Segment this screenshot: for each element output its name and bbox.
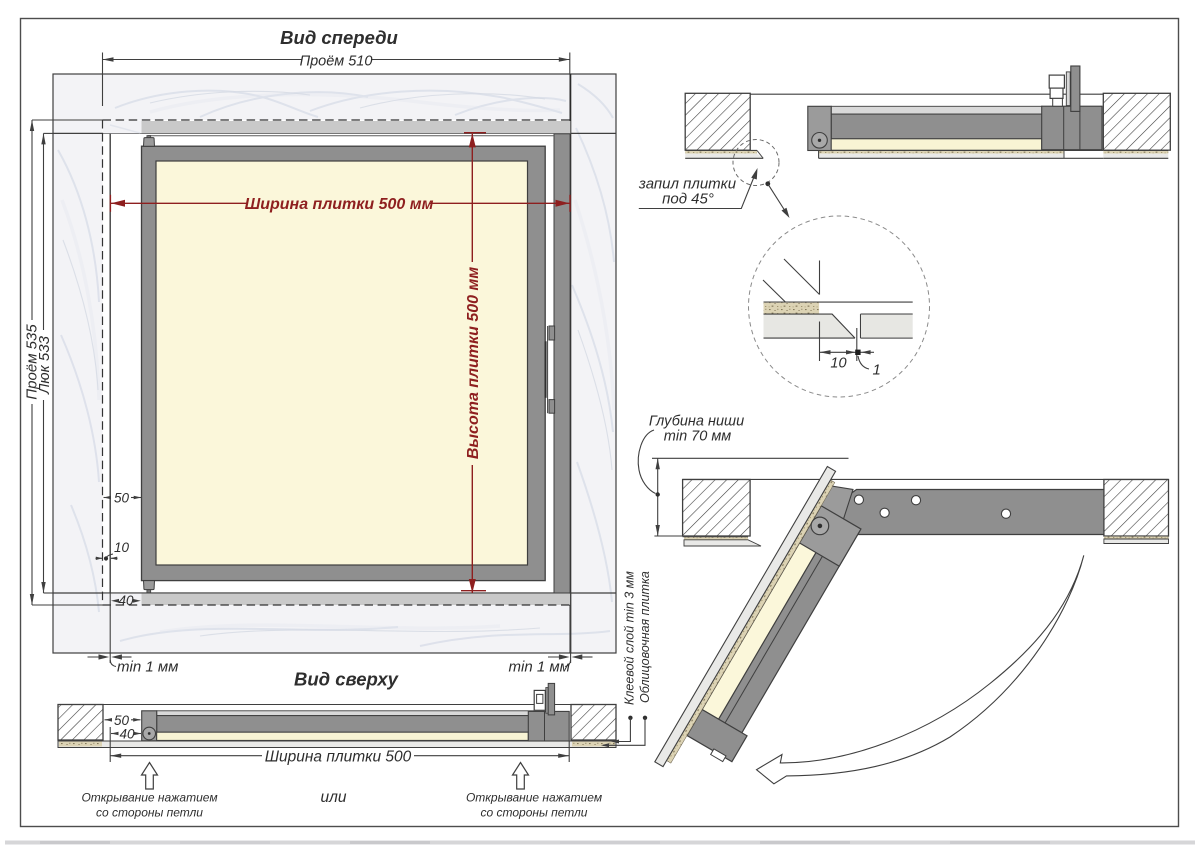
svg-text:Открывание нажатием: Открывание нажатием	[81, 791, 217, 805]
svg-text:10: 10	[830, 356, 846, 372]
svg-text:10: 10	[114, 540, 130, 555]
svg-text:min 1 мм: min 1 мм	[509, 659, 570, 676]
svg-text:50: 50	[114, 491, 130, 506]
svg-text:Глубина ниши: Глубина ниши	[649, 414, 744, 430]
svg-text:Высота плитки 500 мм: Высота плитки 500 мм	[465, 267, 482, 459]
svg-text:под 45°: под 45°	[662, 191, 714, 208]
svg-text:или: или	[321, 789, 347, 806]
svg-text:Открывание нажатием: Открывание нажатием	[466, 791, 602, 805]
svg-text:min 1 мм: min 1 мм	[117, 659, 178, 676]
svg-text:Вид сверху: Вид сверху	[294, 669, 400, 690]
svg-text:Ширина плитки 500: Ширина плитки 500	[265, 749, 412, 766]
svg-text:Проём 510: Проём 510	[300, 54, 373, 70]
svg-text:Облицовочная плитка: Облицовочная плитка	[638, 571, 652, 703]
svg-text:40: 40	[119, 727, 135, 742]
svg-text:со стороны петли: со стороны петли	[96, 806, 203, 820]
svg-text:Ширина плитки 500 мм: Ширина плитки 500 мм	[245, 196, 434, 213]
svg-text:min 70 мм: min 70 мм	[664, 429, 731, 445]
svg-text:Вид спереди: Вид спереди	[280, 27, 398, 48]
svg-text:Клеевой слой min 3 мм: Клеевой слой min 3 мм	[623, 571, 637, 705]
svg-text:Люк 533: Люк 533	[36, 335, 53, 394]
svg-text:со стороны петли: со стороны петли	[481, 806, 588, 820]
svg-text:1: 1	[873, 362, 881, 379]
svg-text:40: 40	[118, 593, 134, 608]
